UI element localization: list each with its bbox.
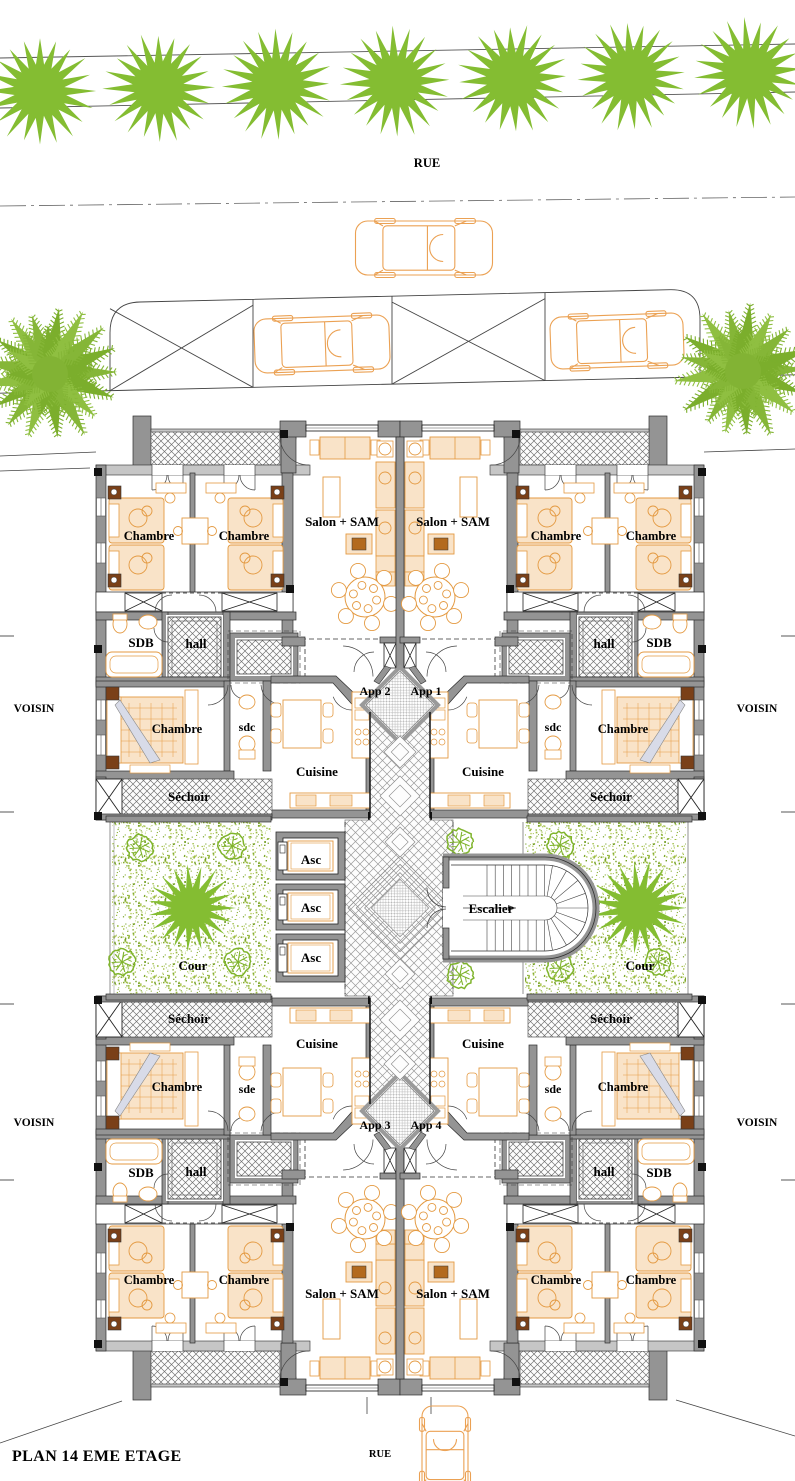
svg-text:Asc: Asc xyxy=(301,900,321,915)
svg-text:VOISIN: VOISIN xyxy=(737,703,778,715)
svg-text:Chambre: Chambre xyxy=(531,1273,582,1287)
svg-text:sde: sde xyxy=(239,1082,256,1096)
svg-text:Salon + SAM: Salon + SAM xyxy=(416,514,490,529)
svg-text:Cuisine: Cuisine xyxy=(296,1036,338,1051)
svg-text:Salon + SAM: Salon + SAM xyxy=(305,514,379,529)
svg-text:SDB: SDB xyxy=(128,1165,154,1180)
svg-text:VOISIN: VOISIN xyxy=(14,1117,55,1129)
svg-text:Chambre: Chambre xyxy=(124,529,175,543)
svg-text:Chambre: Chambre xyxy=(124,1273,175,1287)
svg-text:Cour: Cour xyxy=(179,958,208,973)
svg-text:hall: hall xyxy=(186,636,207,651)
svg-text:Séchoir: Séchoir xyxy=(590,1011,632,1026)
svg-text:RUE: RUE xyxy=(369,1449,391,1460)
svg-text:App 3: App 3 xyxy=(359,1118,390,1132)
svg-text:VOISIN: VOISIN xyxy=(14,703,55,715)
svg-text:Chambre: Chambre xyxy=(598,722,649,736)
svg-text:Séchoir: Séchoir xyxy=(168,1011,210,1026)
svg-text:RUE: RUE xyxy=(414,156,440,170)
svg-text:Cuisine: Cuisine xyxy=(462,1036,504,1051)
svg-text:Séchoir: Séchoir xyxy=(168,789,210,804)
svg-text:hall: hall xyxy=(594,1164,615,1179)
svg-text:Chambre: Chambre xyxy=(531,529,582,543)
svg-text:Chambre: Chambre xyxy=(219,529,270,543)
svg-text:SDB: SDB xyxy=(646,1165,672,1180)
svg-text:Chambre: Chambre xyxy=(152,1080,203,1094)
svg-text:Cour: Cour xyxy=(626,958,655,973)
svg-text:Escalier: Escalier xyxy=(469,901,514,916)
svg-text:Chambre: Chambre xyxy=(152,722,203,736)
svg-text:sdc: sdc xyxy=(545,720,562,734)
svg-text:Cuisine: Cuisine xyxy=(296,764,338,779)
svg-text:Chambre: Chambre xyxy=(626,529,677,543)
svg-text:App 1: App 1 xyxy=(410,684,441,698)
svg-text:App 4: App 4 xyxy=(410,1118,441,1132)
svg-text:sde: sde xyxy=(545,1082,562,1096)
svg-text:Chambre: Chambre xyxy=(598,1080,649,1094)
svg-text:PLAN 14 EME ETAGE: PLAN 14 EME ETAGE xyxy=(12,1448,182,1465)
svg-text:Salon + SAM: Salon + SAM xyxy=(416,1286,490,1301)
svg-text:SDB: SDB xyxy=(128,635,154,650)
svg-text:Chambre: Chambre xyxy=(626,1273,677,1287)
svg-text:sdc: sdc xyxy=(239,720,256,734)
svg-text:VOISIN: VOISIN xyxy=(737,1117,778,1129)
svg-text:Asc: Asc xyxy=(301,950,321,965)
svg-text:Cuisine: Cuisine xyxy=(462,764,504,779)
svg-text:hall: hall xyxy=(186,1164,207,1179)
svg-text:Chambre: Chambre xyxy=(219,1273,270,1287)
svg-text:App 2: App 2 xyxy=(359,684,390,698)
svg-text:Salon + SAM: Salon + SAM xyxy=(305,1286,379,1301)
svg-text:SDB: SDB xyxy=(646,635,672,650)
svg-text:Séchoir: Séchoir xyxy=(590,789,632,804)
svg-text:Asc: Asc xyxy=(301,852,321,867)
svg-text:hall: hall xyxy=(594,636,615,651)
